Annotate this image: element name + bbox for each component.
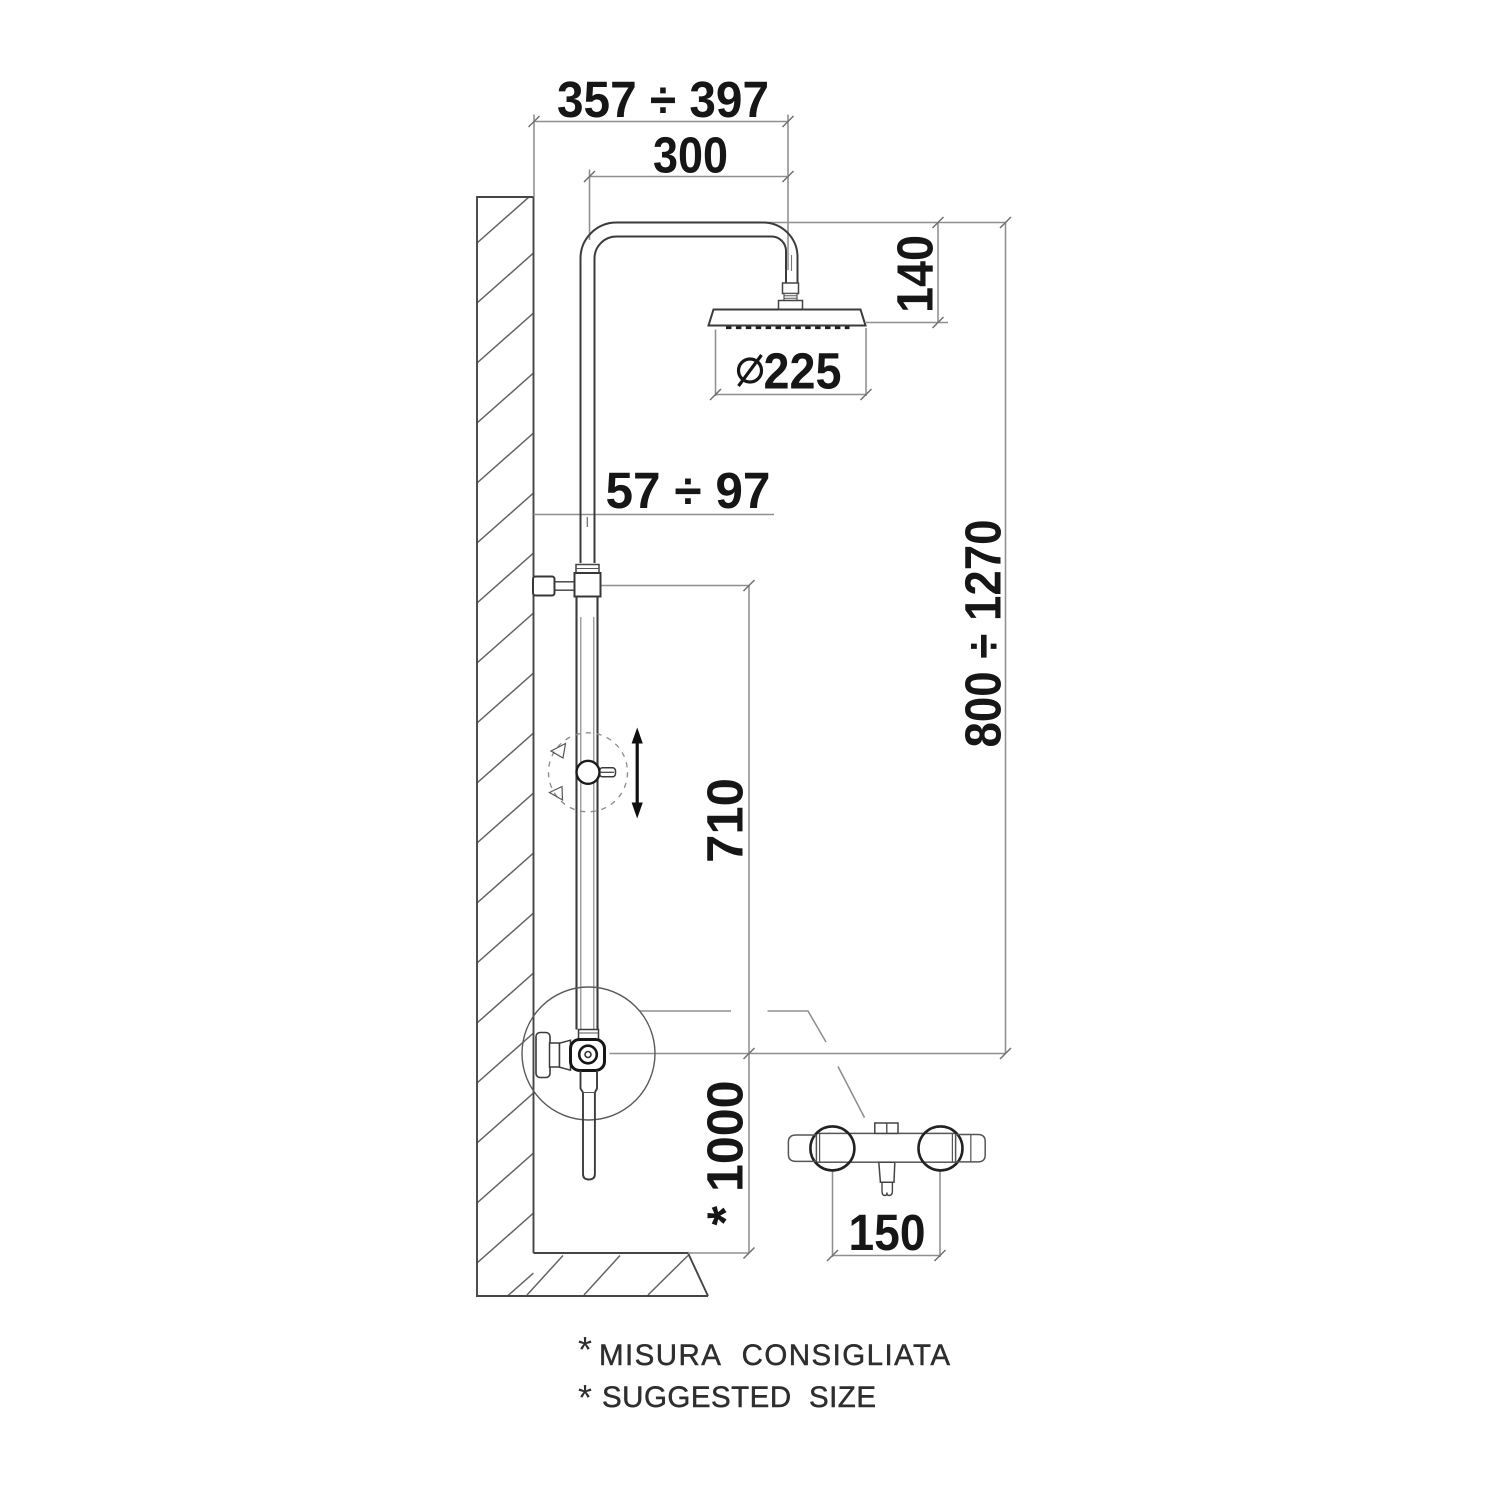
svg-text:*: * bbox=[578, 1377, 592, 1418]
svg-text:150: 150 bbox=[849, 1204, 926, 1261]
svg-text:300: 300 bbox=[653, 127, 728, 184]
svg-text:357 ÷ 397: 357 ÷ 397 bbox=[557, 71, 769, 128]
svg-text:* 1000: * 1000 bbox=[697, 1081, 754, 1226]
svg-text:57 ÷ 97: 57 ÷ 97 bbox=[606, 462, 771, 519]
svg-text:140: 140 bbox=[887, 235, 944, 313]
svg-text:SUGGESTED SIZE: SUGGESTED SIZE bbox=[602, 1381, 876, 1414]
svg-text:800 ÷ 1270: 800 ÷ 1270 bbox=[955, 520, 1012, 748]
svg-text:225: 225 bbox=[764, 343, 842, 400]
svg-text:*: * bbox=[578, 1329, 592, 1370]
svg-text:710: 710 bbox=[697, 778, 754, 863]
svg-text:MISURA CONSIGLIATA: MISURA CONSIGLIATA bbox=[599, 1339, 950, 1372]
